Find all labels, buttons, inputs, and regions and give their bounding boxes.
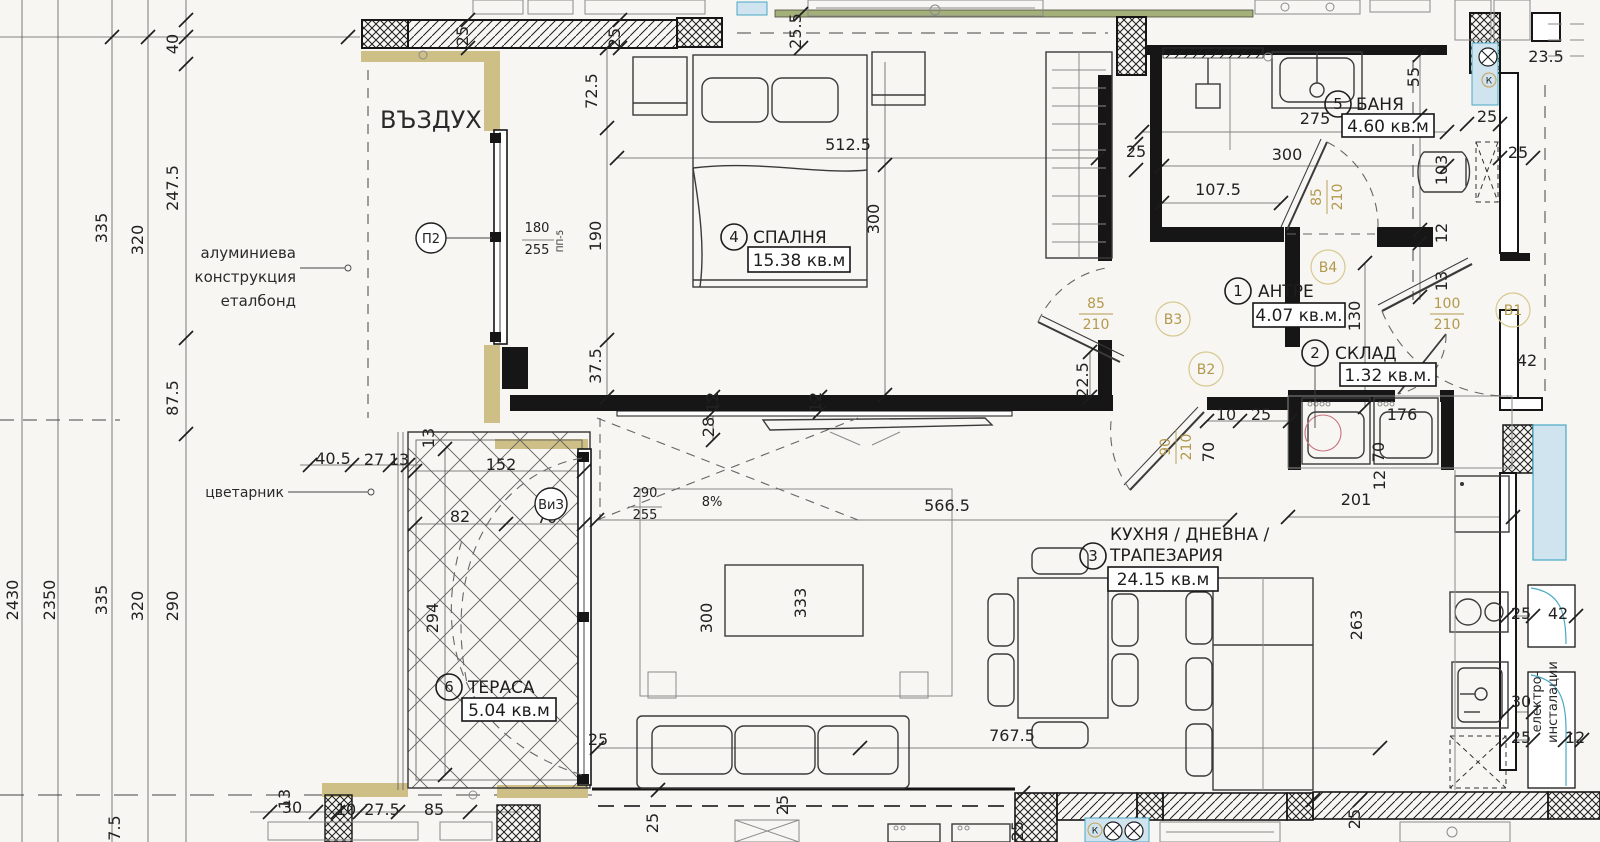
dim-label: 290 [163, 591, 182, 622]
dim-label: 152 [486, 455, 517, 474]
dim-label: 25 [1511, 604, 1531, 623]
chair [988, 654, 1014, 706]
dim-label: 25 [643, 813, 662, 833]
dim-label: 85 [424, 800, 444, 819]
dim-label: 70 [1369, 442, 1388, 462]
dim-label: 335 [92, 585, 111, 616]
dim-label: 201 [1341, 490, 1372, 509]
fan-symbol-icon [1479, 48, 1497, 66]
dim-label: 25 [1477, 107, 1497, 126]
dim-label: 12 [1370, 470, 1389, 490]
dim-label: 263 [1347, 610, 1366, 641]
room-area: 5.04 кв.м [468, 701, 550, 721]
chair [1032, 548, 1088, 574]
dim-label: 42 [1517, 351, 1537, 370]
room-number: 2 [1310, 344, 1320, 362]
side-table [900, 672, 928, 698]
chair [1112, 654, 1138, 706]
dim-label: 40 [163, 34, 182, 54]
dim-tick [1460, 117, 1474, 131]
annotation-text: алуминиева [200, 244, 296, 262]
dim-label: 13 [419, 428, 438, 448]
dim-label: 12 [1565, 728, 1585, 747]
dim-label: 300 [864, 204, 883, 235]
dim-label: 25 [588, 730, 608, 749]
room-label-sklad: 2 СКЛАД 1.32 кв.м. [1302, 340, 1436, 386]
dim-label: 23.5 [1528, 47, 1564, 66]
nightstand [872, 52, 925, 105]
chair [988, 594, 1014, 646]
dim-label: 37.5 [586, 348, 605, 384]
room-number: 4 [729, 228, 739, 246]
fan-symbol-icon [1104, 822, 1122, 840]
annotation-text: еталбонд [221, 292, 296, 310]
axis-mark-label: ВиЗ [538, 498, 564, 513]
door-ref-label: В1 [1504, 303, 1523, 319]
dim-label: 2350 [40, 580, 59, 621]
dim-label: 13 [389, 450, 409, 469]
dim-label: 25 [773, 795, 792, 815]
dim-label: 25 [605, 28, 624, 48]
dim-label: 320 [128, 591, 147, 622]
dim-label: 255 [525, 243, 550, 258]
room-name: ТЕРАСА [467, 678, 535, 698]
chair [1032, 722, 1088, 748]
island-table-group [1186, 578, 1313, 790]
dim-label: 10 [1216, 405, 1236, 424]
dim-label: 130 [1345, 301, 1364, 332]
dim-label: 294 [423, 603, 442, 634]
door-size-tag: 90210 [1158, 430, 1195, 464]
dim-label: 255 [633, 508, 658, 523]
dim-label: 25 [1508, 143, 1528, 162]
door-height: 210 [1330, 184, 1346, 211]
svg-text:К: К [1486, 77, 1493, 87]
dim-label: 25 [1008, 821, 1027, 841]
dim-label: 180 [525, 221, 550, 236]
dim-label: 72.5 [582, 73, 601, 109]
sofa [637, 672, 928, 788]
dim-label: 247.5 [163, 165, 182, 211]
dim-label: 103 [1432, 155, 1451, 186]
room-name: ТРАПЕЗАРИЯ [1109, 546, 1223, 566]
cabinet-dashed-x [1450, 736, 1506, 788]
sofa-cushion [735, 726, 815, 774]
dim-label: 13 [275, 789, 294, 809]
sofa-cushion [652, 726, 732, 774]
annotation-text: ПП-5 [556, 230, 566, 253]
annotation-text: електро- [1530, 671, 1545, 732]
vent-shaft-dashed [1476, 142, 1498, 202]
floor-plan-canvas: 1 АНТРЕ 4.07 кв.м. 2 СКЛАД 1.32 кв.м. 3 … [0, 0, 1600, 842]
door-width: 100 [1434, 296, 1461, 312]
dim-label: 40.5 [315, 449, 351, 468]
dim-label: 8% [702, 495, 723, 510]
room-name: БАНЯ [1356, 95, 1404, 115]
washer-below [888, 824, 940, 842]
dim-label: 82 [450, 507, 470, 526]
dim-label: 27.5 [364, 800, 400, 819]
dim-label: 300 [697, 603, 716, 634]
floor-plan-drawing: 1 АНТРЕ 4.07 кв.м. 2 СКЛАД 1.32 кв.м. 3 … [0, 0, 1600, 842]
chair [1186, 658, 1212, 710]
insulation-strip [484, 345, 500, 423]
dim-label: 190 [586, 221, 605, 252]
dim-label: 30 [1511, 692, 1531, 711]
insulation-strip [361, 51, 485, 62]
chair [1112, 594, 1138, 646]
dim-label: 25 [1251, 405, 1271, 424]
door-size-tag: 100210 [1430, 296, 1464, 333]
side-table [648, 672, 676, 698]
dim-label: 320 [128, 225, 147, 256]
room-area: 15.38 кв.м [753, 251, 846, 271]
chair [1186, 724, 1212, 776]
dim-label: 566.5 [924, 496, 970, 515]
pillow [702, 78, 768, 122]
annotation-text: ВЪЗДУХ [380, 106, 482, 134]
door-size-tag: 85210 [1079, 296, 1113, 333]
room-number: 1 [1233, 282, 1243, 300]
dim-label: 767.5 [989, 726, 1035, 745]
room-label-kitchen: 3 КУХНЯ / ДНЕВНА / ТРАПЕЗАРИЯ 24.15 кв.м [1080, 525, 1269, 591]
chair [1186, 592, 1212, 644]
room-label-bedroom: 4 СПАЛНЯ 15.38 кв.м [721, 224, 850, 272]
dim-label: 28 [699, 417, 718, 437]
dim-label: 512.5 [825, 135, 871, 154]
dim-label: 70 [1199, 442, 1218, 462]
room-number: 3 [1088, 547, 1098, 565]
dim-label: 335 [92, 213, 111, 244]
dim-label: 107.5 [1195, 180, 1241, 199]
duct-column [1503, 425, 1533, 473]
dim-label: 25 [1345, 809, 1364, 829]
door-height: 210 [1434, 317, 1461, 333]
room-number: 6 [444, 678, 454, 696]
room-name: КУХНЯ / ДНЕВНА / [1110, 525, 1269, 545]
dim-label: 27 [364, 450, 384, 469]
dim-tick [1129, 163, 1143, 177]
dim-label: 22.5 [1073, 362, 1092, 398]
svg-text:К: К [1092, 827, 1099, 837]
room-number: 5 [1333, 95, 1343, 113]
door-ref-label: В4 [1319, 260, 1338, 276]
annotation-text: цветарник [205, 485, 284, 501]
annotation-text: инсталации [1546, 661, 1561, 743]
door-width: 85 [1309, 188, 1325, 206]
door-width: 85 [1087, 296, 1105, 312]
dim-label: 7.5 [105, 815, 124, 840]
fixture-cyan [737, 2, 767, 15]
dim-label: 25 [453, 26, 472, 46]
washing-machine [1302, 398, 1370, 464]
shower [1163, 48, 1263, 150]
washbasin [1272, 52, 1362, 108]
dim-label: 55 [1404, 67, 1423, 87]
dim-label: 25 [1511, 728, 1531, 747]
tv-bench [763, 418, 992, 445]
dim-label: 176 [1387, 405, 1418, 424]
dim-label: 275 [1300, 109, 1331, 128]
dim-label: 25.5 [786, 13, 805, 49]
annotation-text: конструкция [195, 268, 296, 286]
door-ref-label: В3 [1164, 312, 1183, 328]
room-name: СКЛАД [1335, 344, 1397, 364]
dim-label: 333 [791, 588, 810, 619]
room-area: 4.07 кв.м. [1255, 306, 1342, 326]
insulation-strip [484, 51, 500, 131]
dim-label: 13 [1432, 271, 1451, 291]
dim-label: 290 [633, 486, 658, 501]
room-label-antre: 1 АНТРЕ 4.07 кв.м. [1225, 278, 1345, 327]
dim-label: 87.5 [163, 380, 182, 416]
dim-label: 12 [703, 392, 722, 412]
dim-label: 12 [806, 392, 825, 412]
door-ref-label: В2 [1197, 362, 1216, 378]
fan-symbol-icon [1125, 822, 1143, 840]
nightstand [633, 57, 687, 115]
dim-label: 42 [1548, 604, 1568, 623]
room-name: СПАЛНЯ [753, 228, 827, 248]
dim-label: 300 [1272, 145, 1303, 164]
shaft-cyan [1533, 425, 1566, 560]
dim-label: 2430 [3, 580, 22, 621]
washer-below [952, 824, 1010, 842]
furniture-layer [633, 48, 1512, 790]
door-height: 210 [1083, 317, 1110, 333]
room-area: 1.32 кв.м. [1344, 366, 1431, 386]
axis-mark-label: П2 [422, 232, 440, 247]
door-width: 90 [1158, 438, 1174, 456]
pillow [772, 78, 838, 122]
door-size-tag: 85210 [1309, 180, 1346, 214]
dining-table [1018, 578, 1108, 718]
door-height: 210 [1179, 434, 1195, 461]
room-name: АНТРЕ [1258, 282, 1314, 302]
room-area: 24.15 кв.м [1117, 570, 1210, 590]
dim-label: 12 [1432, 223, 1451, 243]
dim-label: 25 [1126, 142, 1146, 161]
dim-label: 10 [336, 800, 356, 819]
room-label-bath: 5 БАНЯ 4.60 кв.м [1325, 91, 1434, 137]
